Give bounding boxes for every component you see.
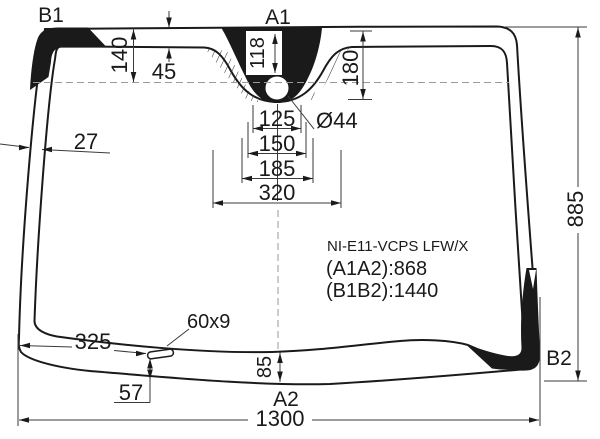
dim-label-885: 885 xyxy=(563,191,588,228)
dim-label-125: 125 xyxy=(259,106,296,131)
dim-left-band-width: 27 xyxy=(0,129,110,154)
dim-label-85: 85 xyxy=(254,356,276,378)
dim-height-right: 885 xyxy=(505,27,588,381)
b2-corner-patch xyxy=(467,268,541,370)
dim-hole-diameter: Ø44 xyxy=(288,96,358,133)
dim-slot-size: 60x9 xyxy=(167,311,230,346)
sensor-hole xyxy=(265,76,289,100)
dim-bottom-band-height: 85 xyxy=(254,353,283,383)
spec-b1b2: (B1B2):1440 xyxy=(326,280,438,302)
dim-label-150: 150 xyxy=(259,131,296,156)
dim-label-118: 118 xyxy=(247,37,269,69)
dim-label-185: 185 xyxy=(259,156,296,181)
dim-label-hole: Ø44 xyxy=(316,108,358,133)
label-b2: B2 xyxy=(546,347,572,370)
dim-slot-from-left: 325 xyxy=(20,329,146,356)
label-b1: B1 xyxy=(38,4,64,27)
dim-sensor-area-height: 180 xyxy=(338,31,372,100)
dim-label-140: 140 xyxy=(107,37,132,74)
b1-corner-patch xyxy=(30,28,106,91)
dim-label-180: 180 xyxy=(338,50,363,87)
dim-label-45: 45 xyxy=(152,59,176,84)
windshield-diagram: 140 45 118 180 Ø44 125 1 xyxy=(0,0,600,439)
part-code: NI-E11-VCPS LFW/X xyxy=(327,238,468,255)
label-a1: A1 xyxy=(265,6,291,29)
dim-label-325: 325 xyxy=(75,329,112,354)
dim-label-60x9: 60x9 xyxy=(187,311,230,333)
dim-slot-from-bottom: 57 xyxy=(114,359,153,406)
dim-label-57: 57 xyxy=(119,380,143,405)
dim-top-band-height: 140 xyxy=(107,30,136,83)
spec-a1a2: (A1A2):868 xyxy=(326,258,427,280)
dim-label-27: 27 xyxy=(74,129,98,154)
diagram-canvas: 140 45 118 180 Ø44 125 1 xyxy=(0,0,600,439)
dim-label-320: 320 xyxy=(259,180,296,205)
mounting-slot xyxy=(147,349,174,360)
label-a2: A2 xyxy=(273,388,299,411)
